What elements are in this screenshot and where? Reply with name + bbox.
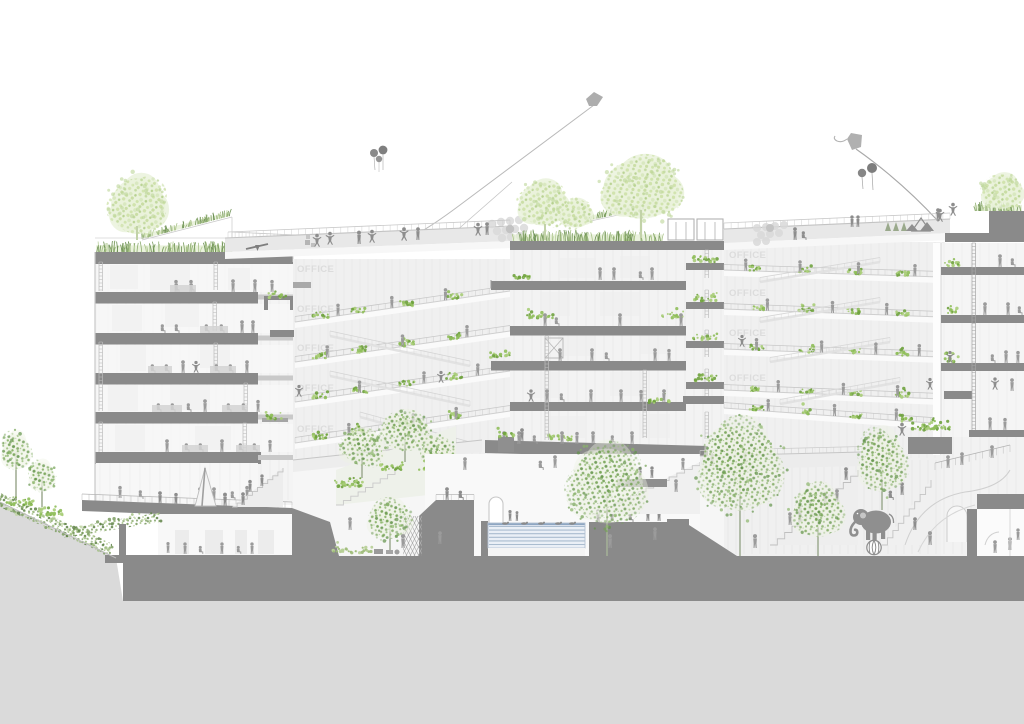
svg-text:OFFICE: OFFICE: [729, 250, 766, 261]
svg-text:OFFICE: OFFICE: [729, 288, 766, 299]
svg-text:OFFICE: OFFICE: [297, 424, 334, 435]
svg-text:OFFICE: OFFICE: [297, 343, 334, 354]
svg-text:OFFICE: OFFICE: [729, 328, 766, 339]
svg-text:OFFICE: OFFICE: [297, 264, 334, 275]
svg-text:OFFICE: OFFICE: [729, 373, 766, 384]
